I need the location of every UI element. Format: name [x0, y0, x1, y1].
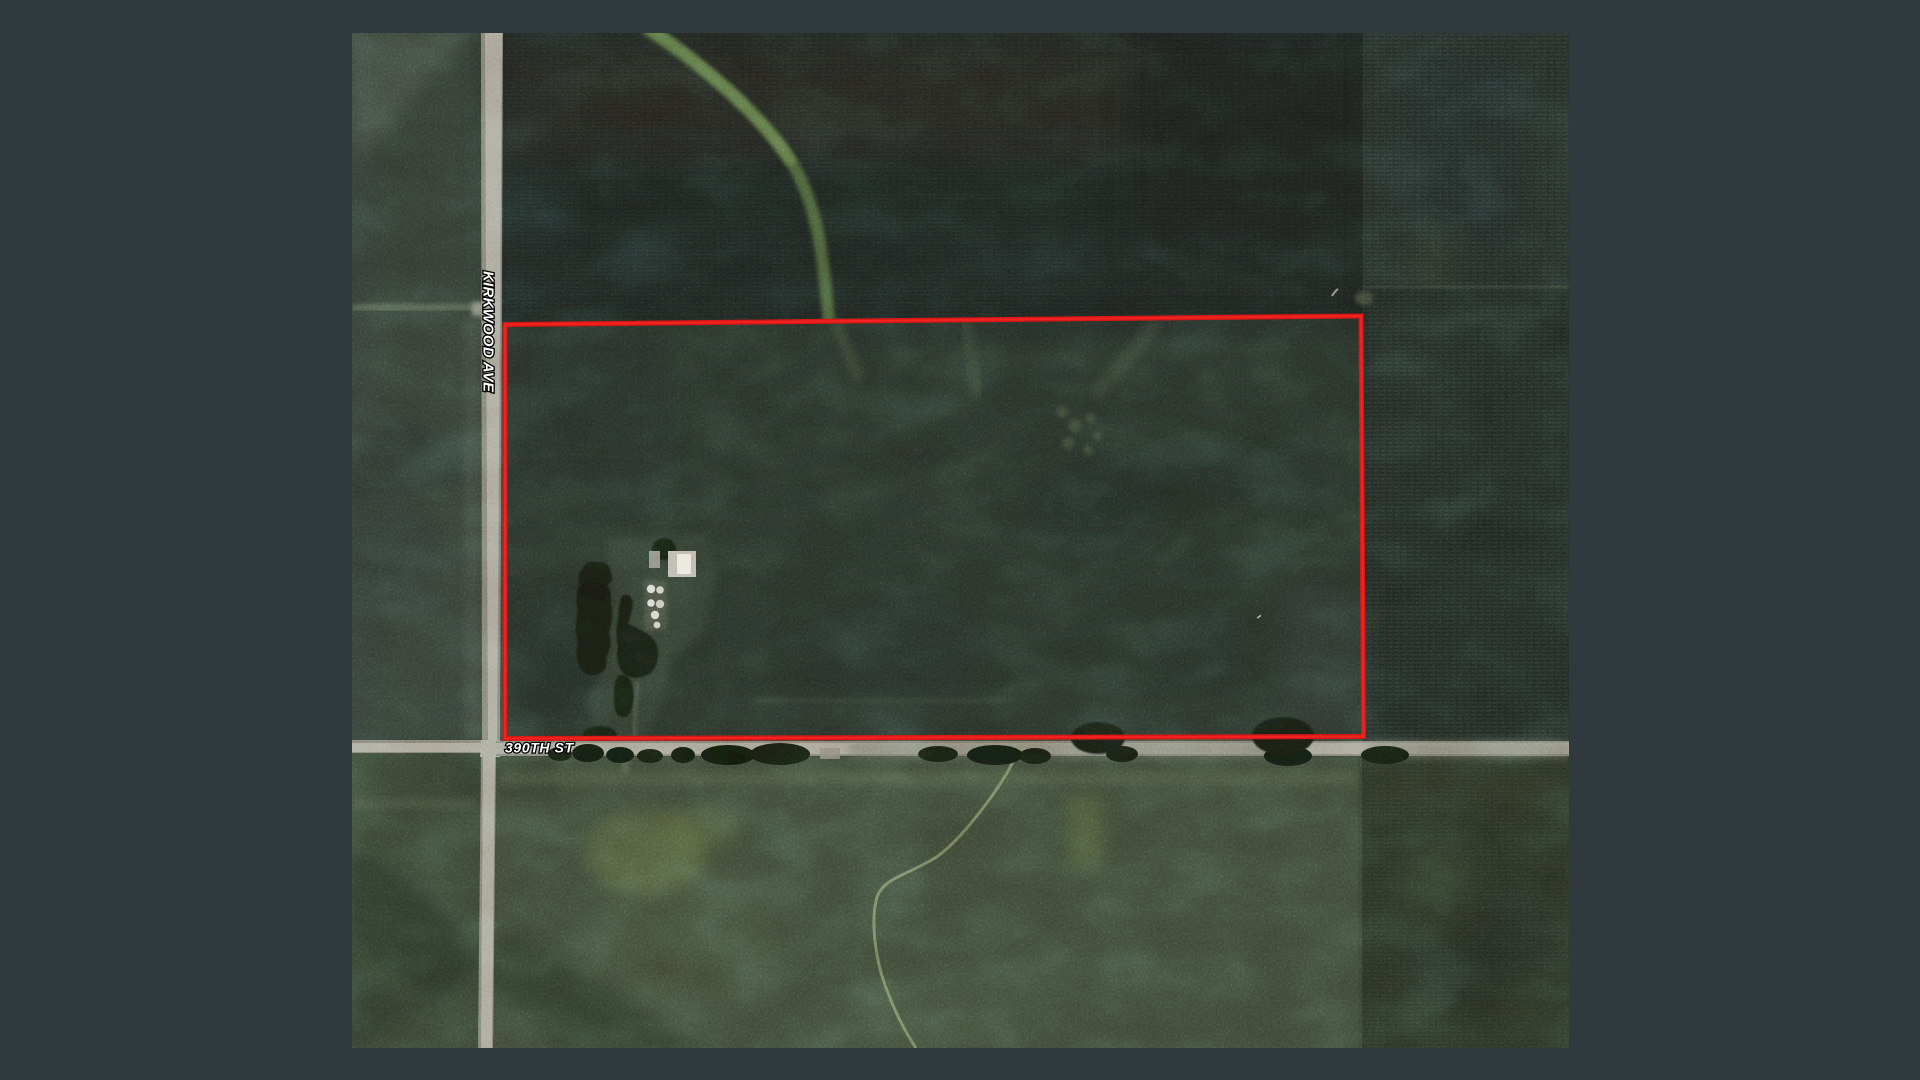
- svg-text:KIRKWOOD AVE: KIRKWOOD AVE: [480, 271, 497, 393]
- svg-text:390TH ST: 390TH ST: [505, 740, 575, 756]
